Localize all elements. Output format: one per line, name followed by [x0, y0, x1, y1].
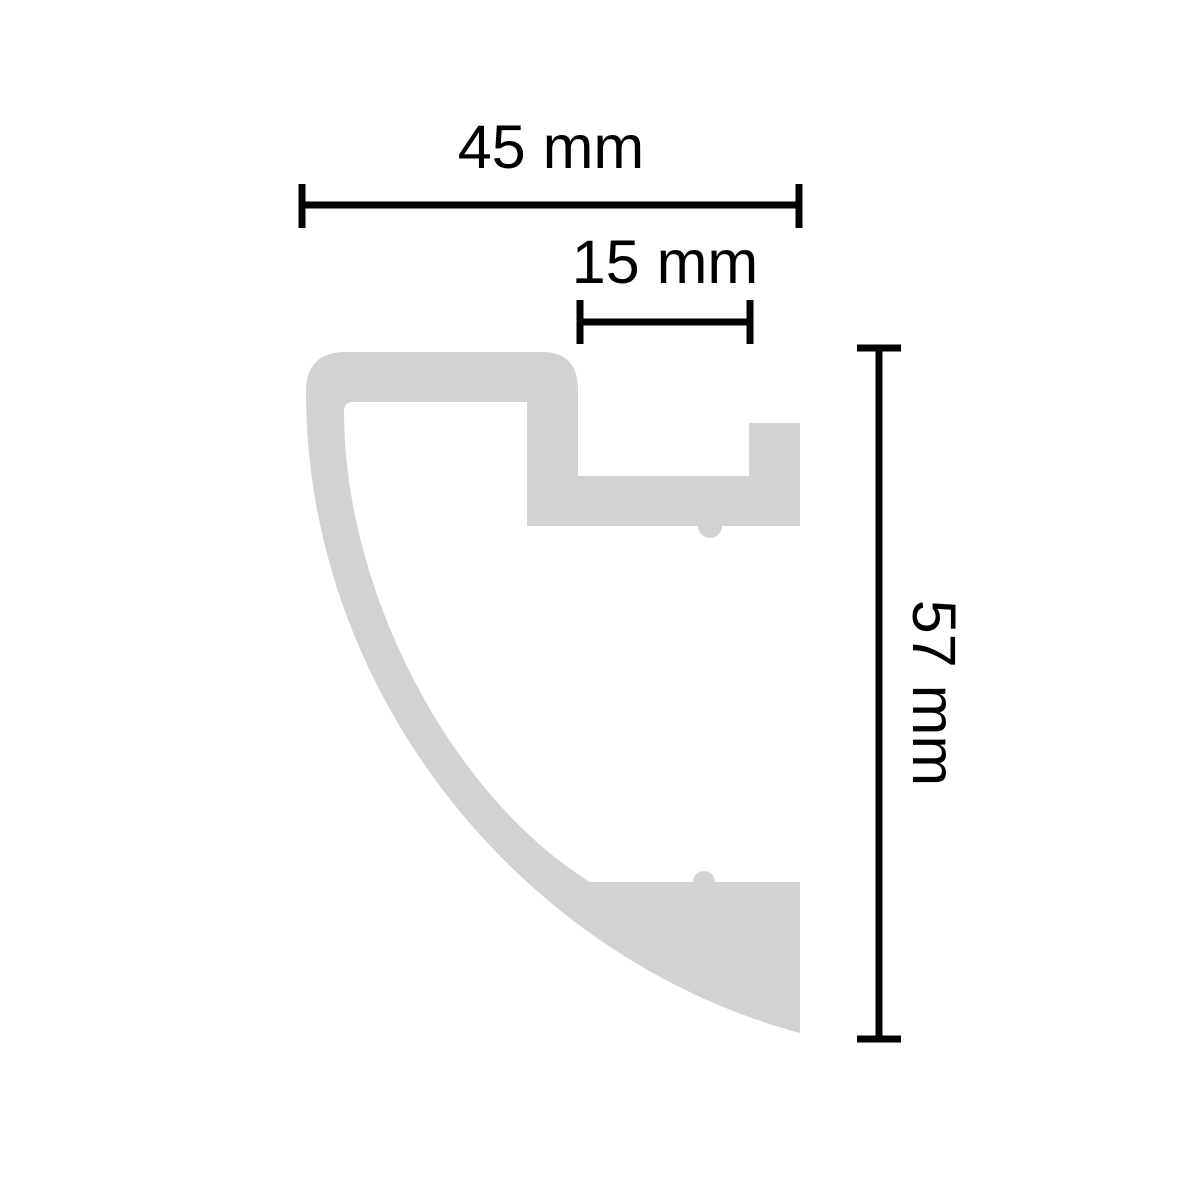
- dimension-height-label: 57 mm: [900, 600, 968, 786]
- dimension-ledge-label: 15 mm: [572, 228, 758, 296]
- technical-drawing: 45 mm 15 mm 57 mm: [0, 0, 1200, 1200]
- dimension-height: [857, 348, 901, 1039]
- drawing-svg: 45 mm 15 mm 57 mm: [0, 0, 1200, 1200]
- dimension-ledge: [580, 300, 750, 344]
- dimension-width: [302, 184, 799, 228]
- dimension-width-label: 45 mm: [458, 113, 644, 181]
- profile-shape: [306, 352, 800, 1033]
